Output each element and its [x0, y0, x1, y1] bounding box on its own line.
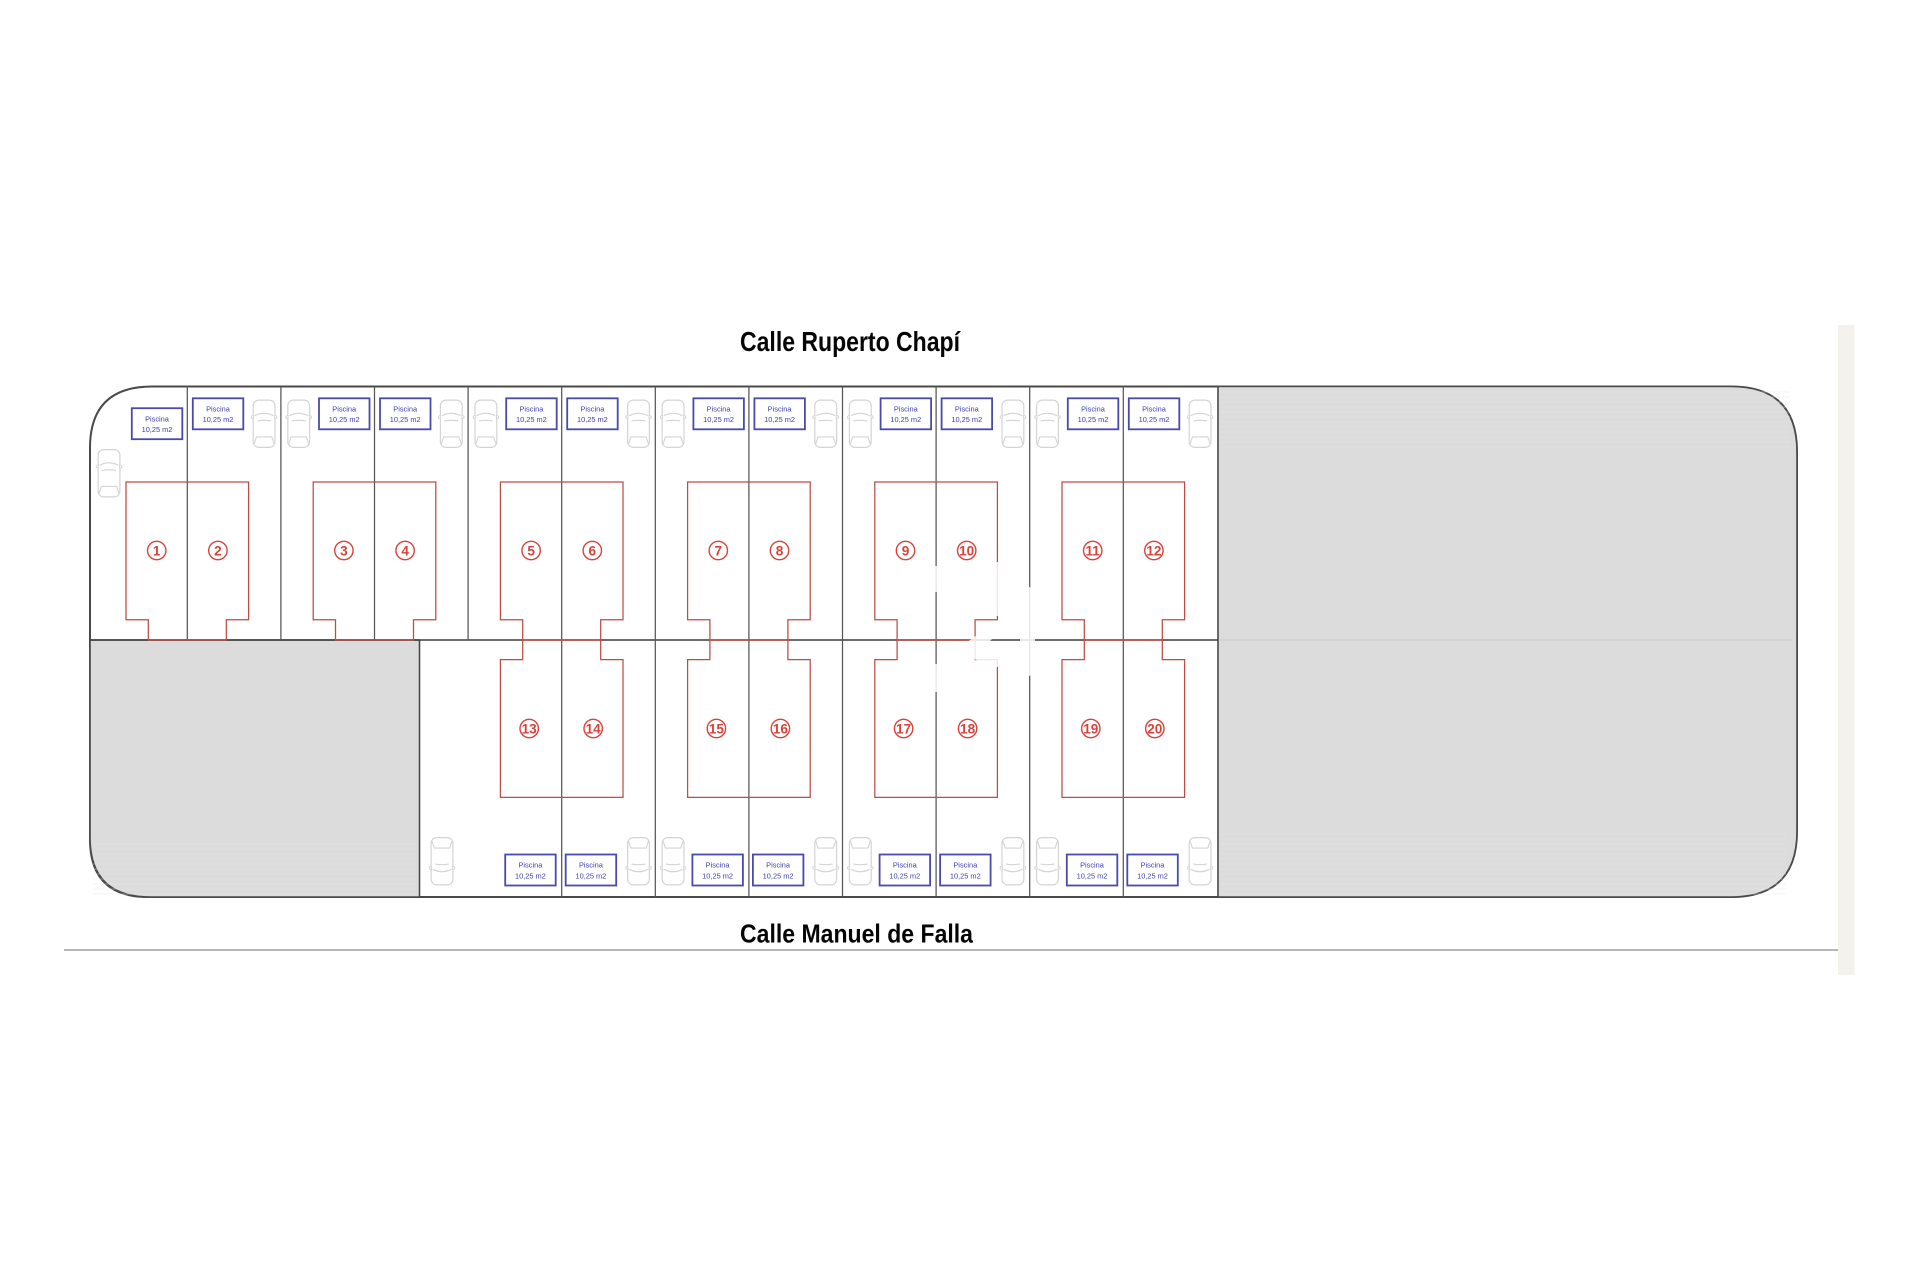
svg-text:14: 14: [586, 721, 602, 736]
svg-text:19: 19: [1083, 721, 1099, 736]
svg-text:10: 10: [959, 543, 974, 558]
svg-text:13: 13: [522, 721, 538, 736]
svg-text:11: 11: [1086, 543, 1101, 558]
svg-text:5: 5: [527, 543, 535, 558]
svg-text:2: 2: [214, 543, 222, 558]
svg-text:18: 18: [960, 721, 976, 736]
svg-text:4: 4: [401, 543, 409, 558]
svg-text:20: 20: [1147, 721, 1162, 736]
svg-text:3: 3: [340, 543, 348, 558]
svg-text:12: 12: [1146, 543, 1162, 558]
svg-text:16: 16: [773, 721, 789, 736]
svg-text:7: 7: [715, 543, 723, 558]
svg-text:9: 9: [902, 543, 910, 558]
svg-text:6: 6: [589, 543, 597, 558]
svg-text:1: 1: [153, 543, 161, 558]
svg-text:15: 15: [709, 721, 725, 736]
svg-text:Calle Manuel de Falla: Calle Manuel de Falla: [740, 919, 973, 949]
svg-text:17: 17: [896, 721, 911, 736]
svg-text:Calle Ruperto Chapí: Calle Ruperto Chapí: [740, 326, 961, 357]
svg-text:8: 8: [776, 543, 784, 558]
